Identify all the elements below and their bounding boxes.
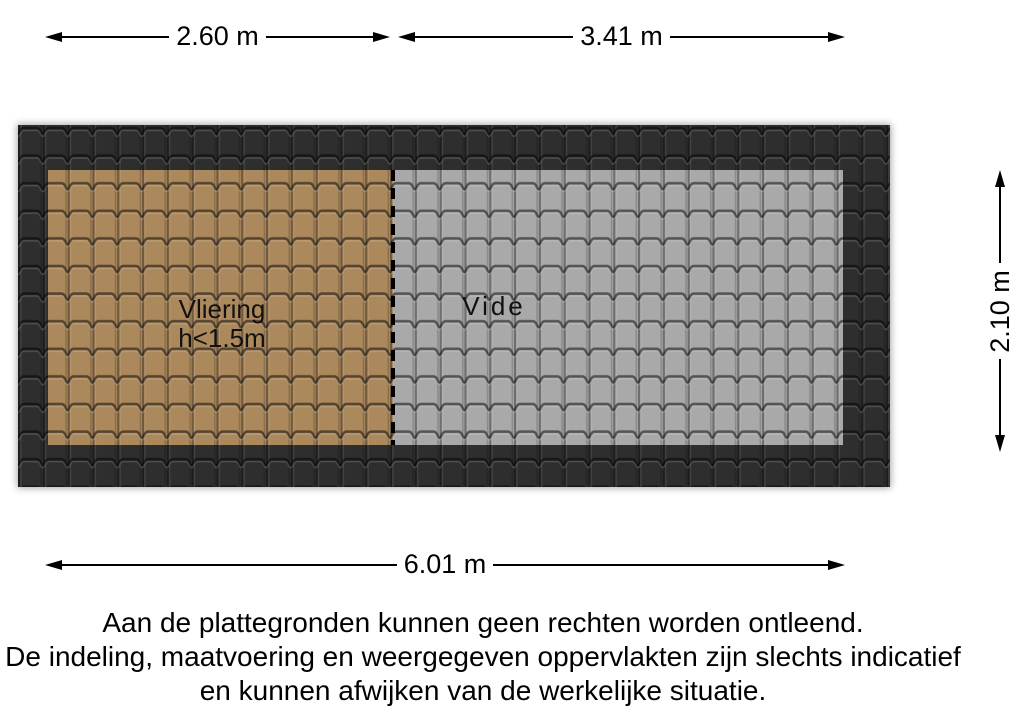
dimension-line — [62, 36, 169, 38]
dimension-label-right-box: 2.10 m — [985, 263, 1015, 359]
dimension-line — [999, 187, 1001, 263]
arrow-right-icon — [373, 32, 390, 42]
disclaimer-line: Aan de plattegronden kunnen geen rechten… — [0, 606, 966, 640]
dimension-line — [266, 36, 373, 38]
dimension-line — [670, 36, 828, 38]
dimension-line — [493, 564, 828, 566]
roof-plan: Vliering h<1.5m Vide — [18, 125, 890, 487]
arrow-left-icon — [45, 32, 62, 42]
room-label-vliering-height: h<1.5m — [112, 324, 332, 353]
dimension-label-top-left: 2.60 m — [169, 23, 266, 50]
dimension-label-right: 2.10 m — [987, 270, 1014, 353]
room-label-vliering: Vliering h<1.5m — [112, 295, 332, 353]
arrow-left-icon — [45, 560, 62, 570]
dimension-line — [415, 36, 573, 38]
arrow-down-icon — [995, 435, 1005, 452]
arrow-up-icon — [995, 170, 1005, 187]
arrow-right-icon — [828, 560, 845, 570]
arrow-right-icon — [828, 32, 845, 42]
dimension-bottom: 6.01 m — [45, 551, 845, 578]
disclaimer-line: De indeling, maatvoering en weergegeven … — [0, 640, 966, 674]
dimension-label-bottom: 6.01 m — [397, 551, 494, 578]
disclaimer-text: Aan de plattegronden kunnen geen rechten… — [0, 606, 966, 708]
dimension-top-left: 2.60 m — [45, 23, 390, 50]
dimension-label-top-right: 3.41 m — [573, 23, 670, 50]
dimension-line — [62, 564, 397, 566]
disclaimer-line: en kunnen afwijken van de werkelijke sit… — [0, 674, 966, 708]
dimension-top-right: 3.41 m — [398, 23, 845, 50]
room-label-vide-name: Vide — [414, 292, 574, 321]
room-label-vide: Vide — [414, 292, 574, 321]
dimension-line — [999, 359, 1001, 435]
dimension-right: 2.10 m — [976, 170, 1024, 452]
room-label-vliering-name: Vliering — [112, 295, 332, 324]
floorplan-page: { "colors": { "background": "#ffffff", "… — [0, 0, 1024, 724]
arrow-left-icon — [398, 32, 415, 42]
